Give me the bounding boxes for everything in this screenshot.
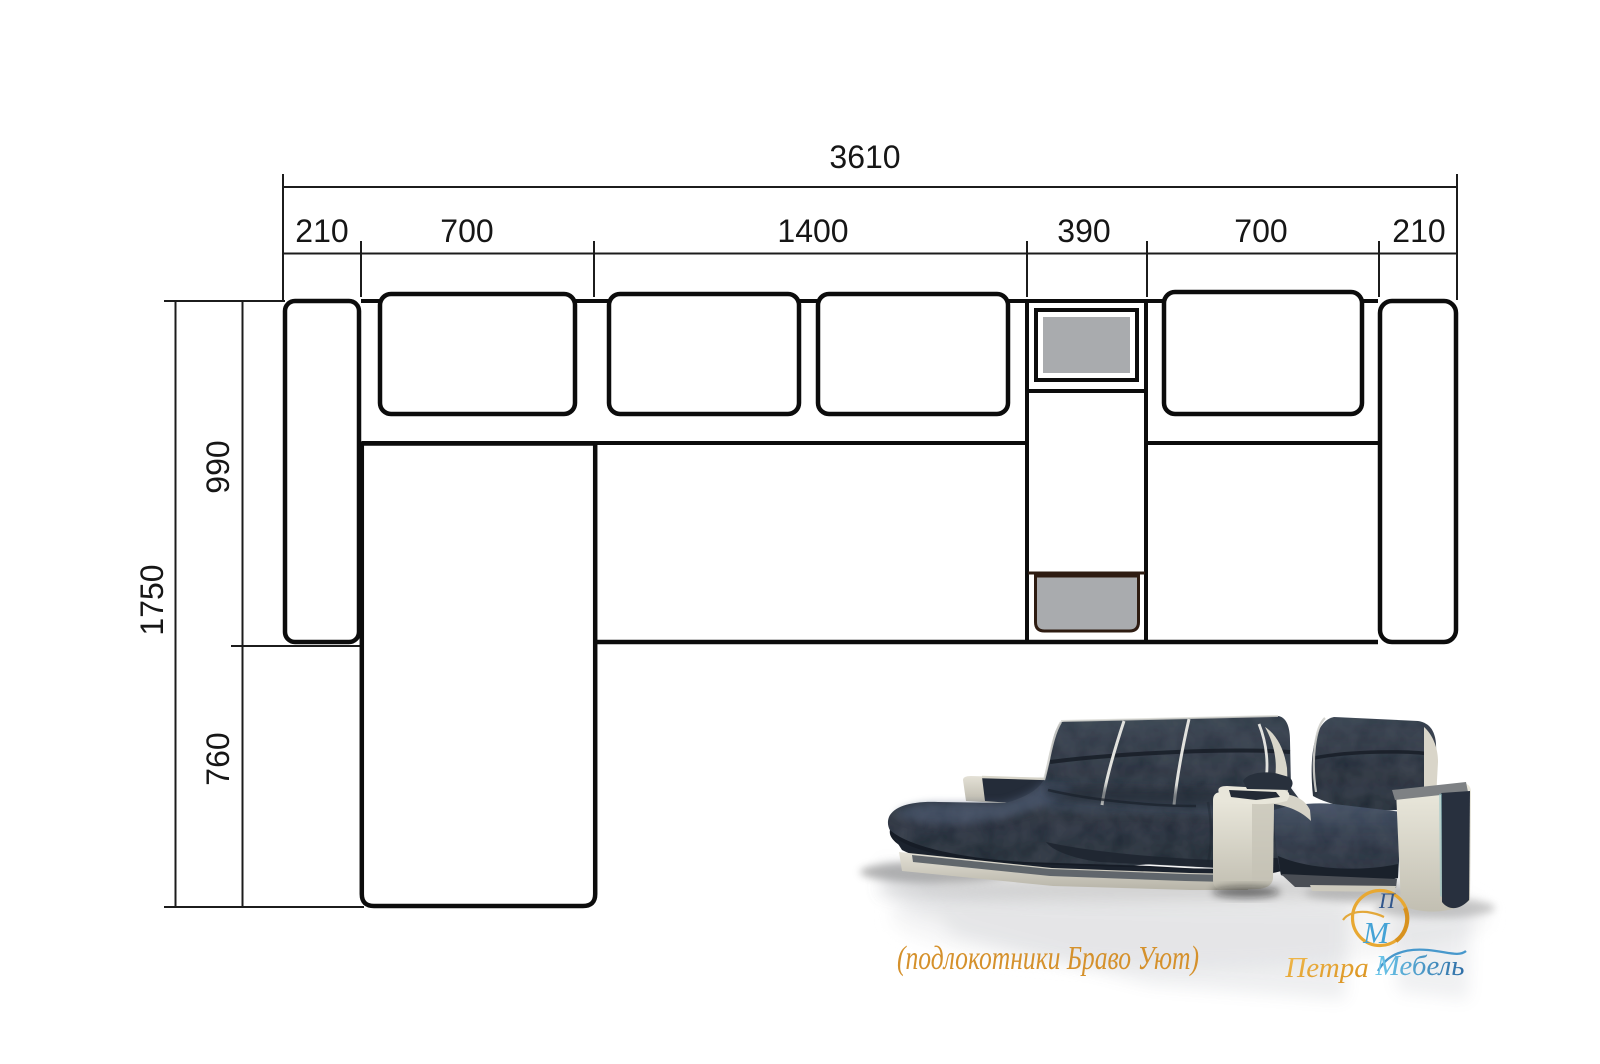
svg-text:(подлокотники Браво Уют): (подлокотники Браво Уют)	[897, 940, 1199, 977]
svg-text:П: П	[1378, 888, 1396, 913]
svg-text:210: 210	[1392, 213, 1445, 249]
svg-text:990: 990	[200, 440, 236, 493]
svg-text:700: 700	[440, 213, 493, 249]
svg-text:3610: 3610	[829, 139, 900, 175]
svg-text:700: 700	[1234, 213, 1287, 249]
svg-text:390: 390	[1057, 213, 1110, 249]
svg-text:210: 210	[295, 213, 348, 249]
svg-text:760: 760	[200, 732, 236, 785]
svg-text:1400: 1400	[777, 213, 848, 249]
svg-text:Мебель: Мебель	[1375, 950, 1465, 982]
svg-text:Петра: Петра	[1284, 952, 1368, 984]
svg-text:1750: 1750	[134, 564, 170, 635]
svg-text:М: М	[1362, 915, 1391, 950]
